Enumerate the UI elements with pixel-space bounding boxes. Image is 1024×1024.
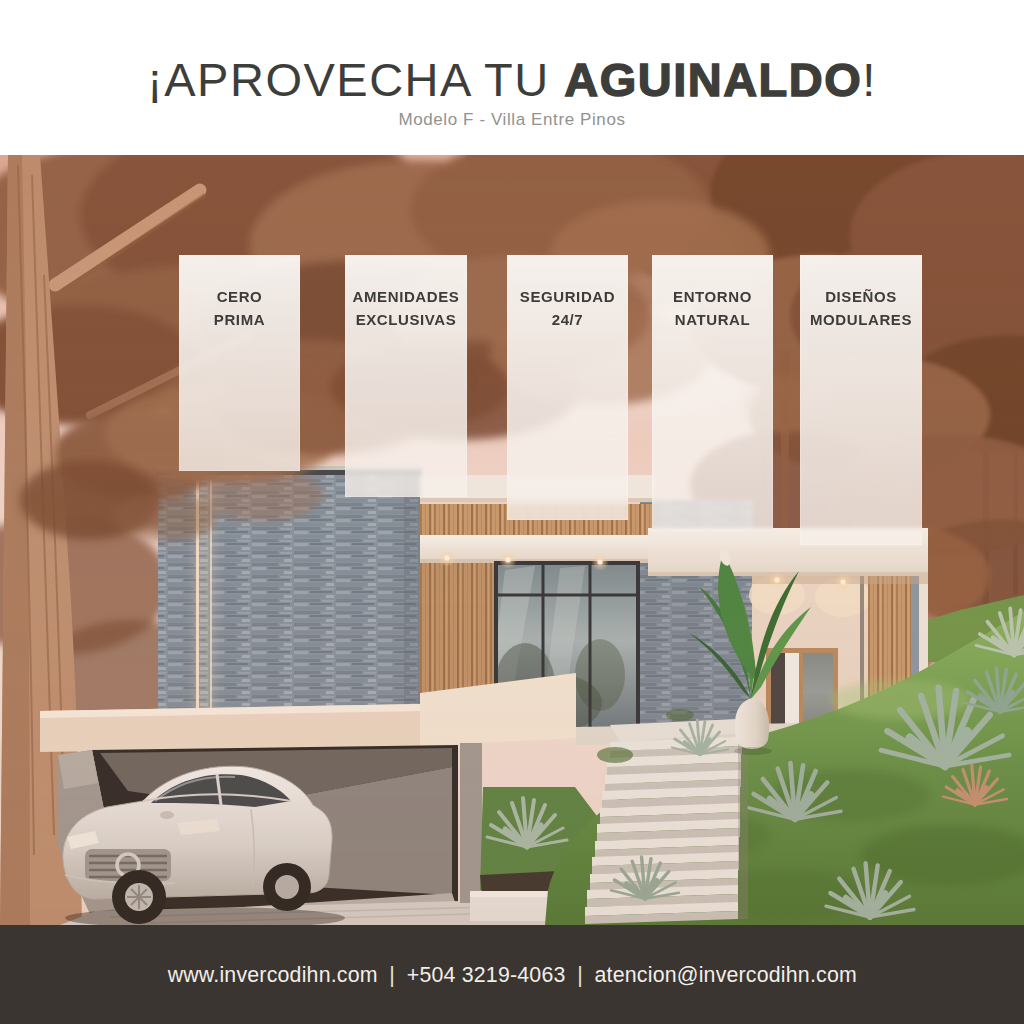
feature-card-line: MODULARES [800,308,922,331]
feature-card-entorno: ENTORNO NATURAL [652,255,773,531]
website-link[interactable]: www.invercodihn.com [167,962,377,987]
email-address[interactable]: atencion@invercodihn.com [594,962,856,987]
footer-contact-text: www.invercodihn.com|+504 3219-4063|atenc… [167,962,856,988]
footer-contact-bar: www.invercodihn.com|+504 3219-4063|atenc… [0,925,1024,1024]
title-emphasis: AGUINALDO [564,53,862,106]
feature-card-line: NATURAL [652,308,773,331]
feature-card-disenos: DISEÑOS MODULARES [800,255,922,545]
feature-card-line: PRIMA [179,308,300,331]
title-suffix: ! [862,53,877,106]
separator: | [577,962,583,987]
feature-card-amenidades: AMENIDADES EXCLUSIVAS [345,255,467,497]
villa-photo: CERO PRIMA AMENIDADES EXCLUSIVAS SEGURID… [0,155,1024,925]
promo-poster: ¡APROVECHA TU AGUINALDO! Modelo F - Vill… [0,0,1024,1024]
phone-number[interactable]: +504 3219-4063 [406,962,565,987]
feature-card-line: DISEÑOS [800,285,922,308]
title-regular: ¡APROVECHA TU [147,53,564,106]
feature-card-cero-prima: CERO PRIMA [179,255,300,471]
feature-card-line: ENTORNO [652,285,773,308]
feature-card-line: CERO [179,285,300,308]
header: ¡APROVECHA TU AGUINALDO! Modelo F - Vill… [0,0,1024,155]
feature-card-seguridad: SEGURIDAD 24/7 [507,255,628,520]
page-title: ¡APROVECHA TU AGUINALDO! [0,56,1024,103]
feature-card-line: SEGURIDAD [507,285,628,308]
feature-card-line: EXCLUSIVAS [345,308,467,331]
separator: | [389,962,395,987]
feature-card-line: AMENIDADES [345,285,467,308]
model-subtitle: Modelo F - Villa Entre Pinos [0,110,1024,130]
feature-card-line: 24/7 [507,308,628,331]
